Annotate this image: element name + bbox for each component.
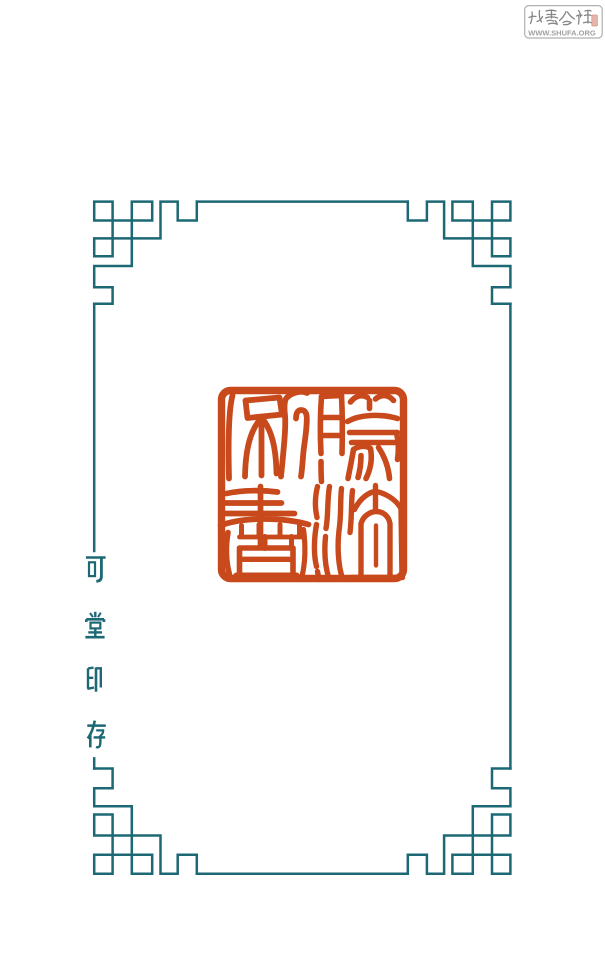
svg-text:WWW.SHUFA.ORG: WWW.SHUFA.ORG [528,29,596,38]
